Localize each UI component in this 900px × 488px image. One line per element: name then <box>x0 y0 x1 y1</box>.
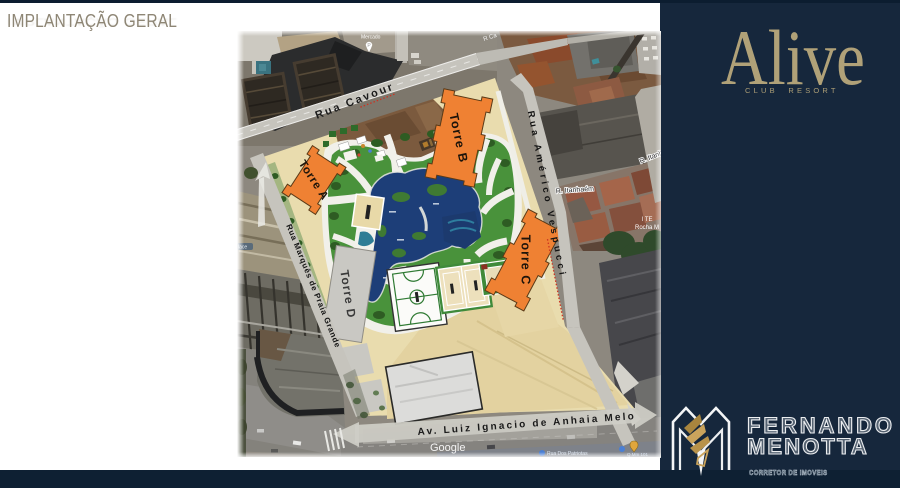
svg-text:l TE: l TE <box>642 217 653 223</box>
svg-text:Torre C: Torre C <box>519 235 533 286</box>
